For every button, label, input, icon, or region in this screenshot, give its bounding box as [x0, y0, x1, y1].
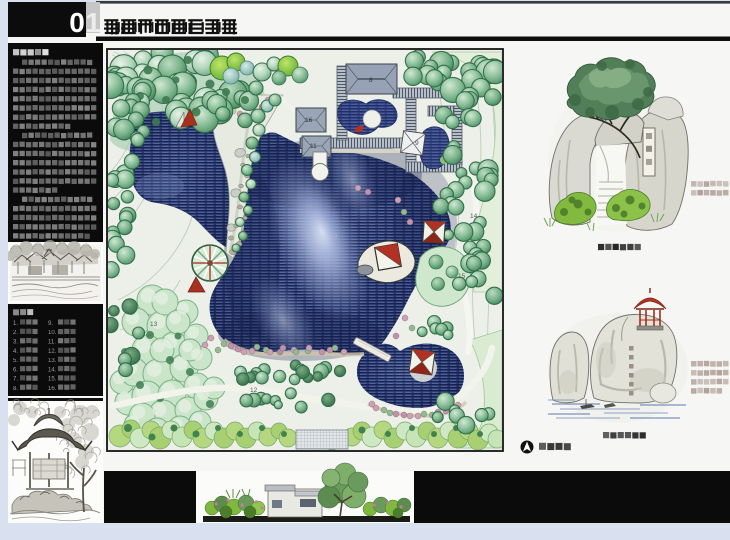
- svg-text:5.: 5.: [13, 358, 18, 364]
- svg-text:4.: 4.: [13, 349, 18, 355]
- svg-text:7.: 7.: [13, 377, 18, 383]
- svg-text:6.: 6.: [13, 367, 18, 373]
- svg-text:16: 16: [305, 117, 313, 124]
- svg-text:8.: 8.: [13, 386, 18, 392]
- svg-text:8: 8: [369, 77, 373, 84]
- svg-text:11: 11: [310, 143, 317, 150]
- svg-text:14.: 14.: [48, 367, 57, 373]
- svg-text:13.: 13.: [48, 358, 57, 364]
- svg-text:11.: 11.: [48, 340, 56, 346]
- svg-text:13: 13: [150, 321, 158, 328]
- svg-text:10: 10: [330, 233, 338, 240]
- svg-text:15: 15: [458, 273, 466, 280]
- svg-text:9.: 9.: [48, 321, 53, 327]
- svg-text:1.: 1.: [13, 321, 18, 327]
- svg-text:3.: 3.: [13, 340, 18, 346]
- svg-text:9: 9: [415, 140, 419, 147]
- svg-text:16.: 16.: [48, 386, 57, 392]
- svg-text:12: 12: [250, 387, 258, 394]
- svg-text:10.: 10.: [48, 330, 57, 336]
- svg-text:0: 0: [69, 7, 85, 38]
- svg-text:1: 1: [85, 7, 101, 38]
- svg-text:12.: 12.: [48, 349, 57, 355]
- svg-text:2.: 2.: [13, 330, 18, 336]
- svg-text:15.: 15.: [48, 377, 57, 383]
- svg-text:14: 14: [470, 213, 478, 220]
